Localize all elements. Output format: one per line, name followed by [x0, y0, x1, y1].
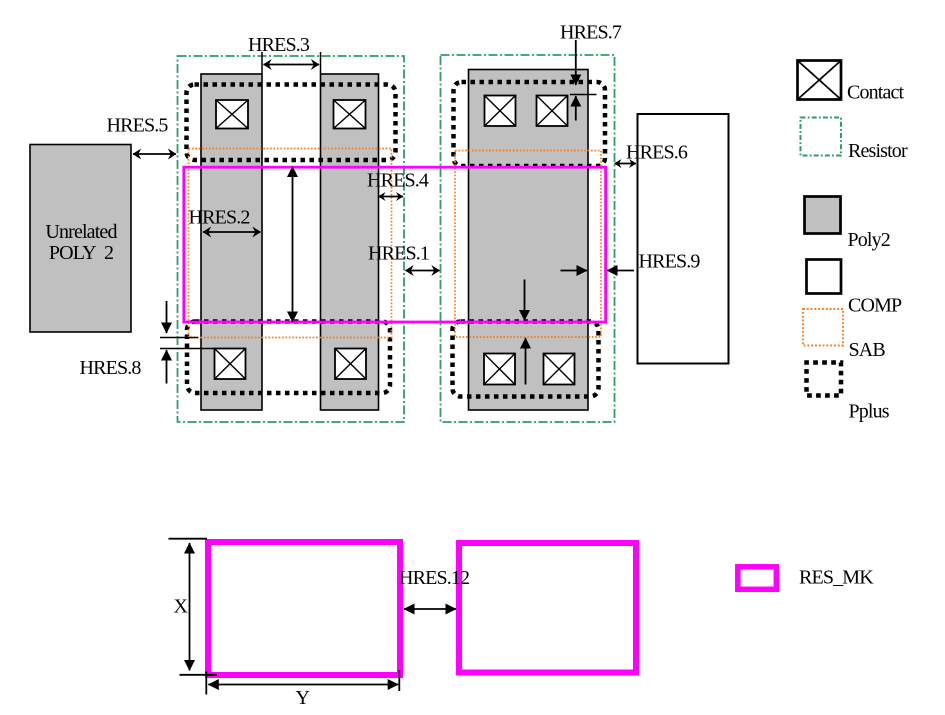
svg-text:HRES.1: HRES.1	[368, 243, 429, 265]
svg-text:Resistor: Resistor	[848, 140, 908, 162]
svg-text:HRES.4: HRES.4	[367, 170, 429, 192]
svg-text:COMP: COMP	[848, 295, 902, 317]
svg-text:HRES.12: HRES.12	[399, 567, 469, 589]
svg-text:POLY 2: POLY 2	[49, 242, 113, 264]
svg-text:Unrelated: Unrelated	[45, 221, 117, 243]
svg-text:RES_MK: RES_MK	[799, 567, 874, 589]
svg-text:SAB: SAB	[849, 339, 886, 361]
svg-text:HRES.5: HRES.5	[107, 115, 169, 137]
svg-text:HRES.8: HRES.8	[80, 357, 142, 379]
svg-text:HRES.9: HRES.9	[639, 251, 701, 273]
svg-text:Y: Y	[296, 687, 310, 709]
svg-text:X: X	[174, 596, 189, 618]
svg-text:Poly2: Poly2	[848, 229, 890, 251]
svg-text:HRES.7: HRES.7	[560, 22, 622, 44]
svg-text:HRES.6: HRES.6	[626, 142, 688, 164]
svg-text:Contact: Contact	[847, 82, 905, 104]
svg-text:HRES.3: HRES.3	[248, 34, 310, 56]
svg-text:HRES.2: HRES.2	[189, 207, 250, 229]
svg-text:Pplus: Pplus	[849, 401, 890, 423]
